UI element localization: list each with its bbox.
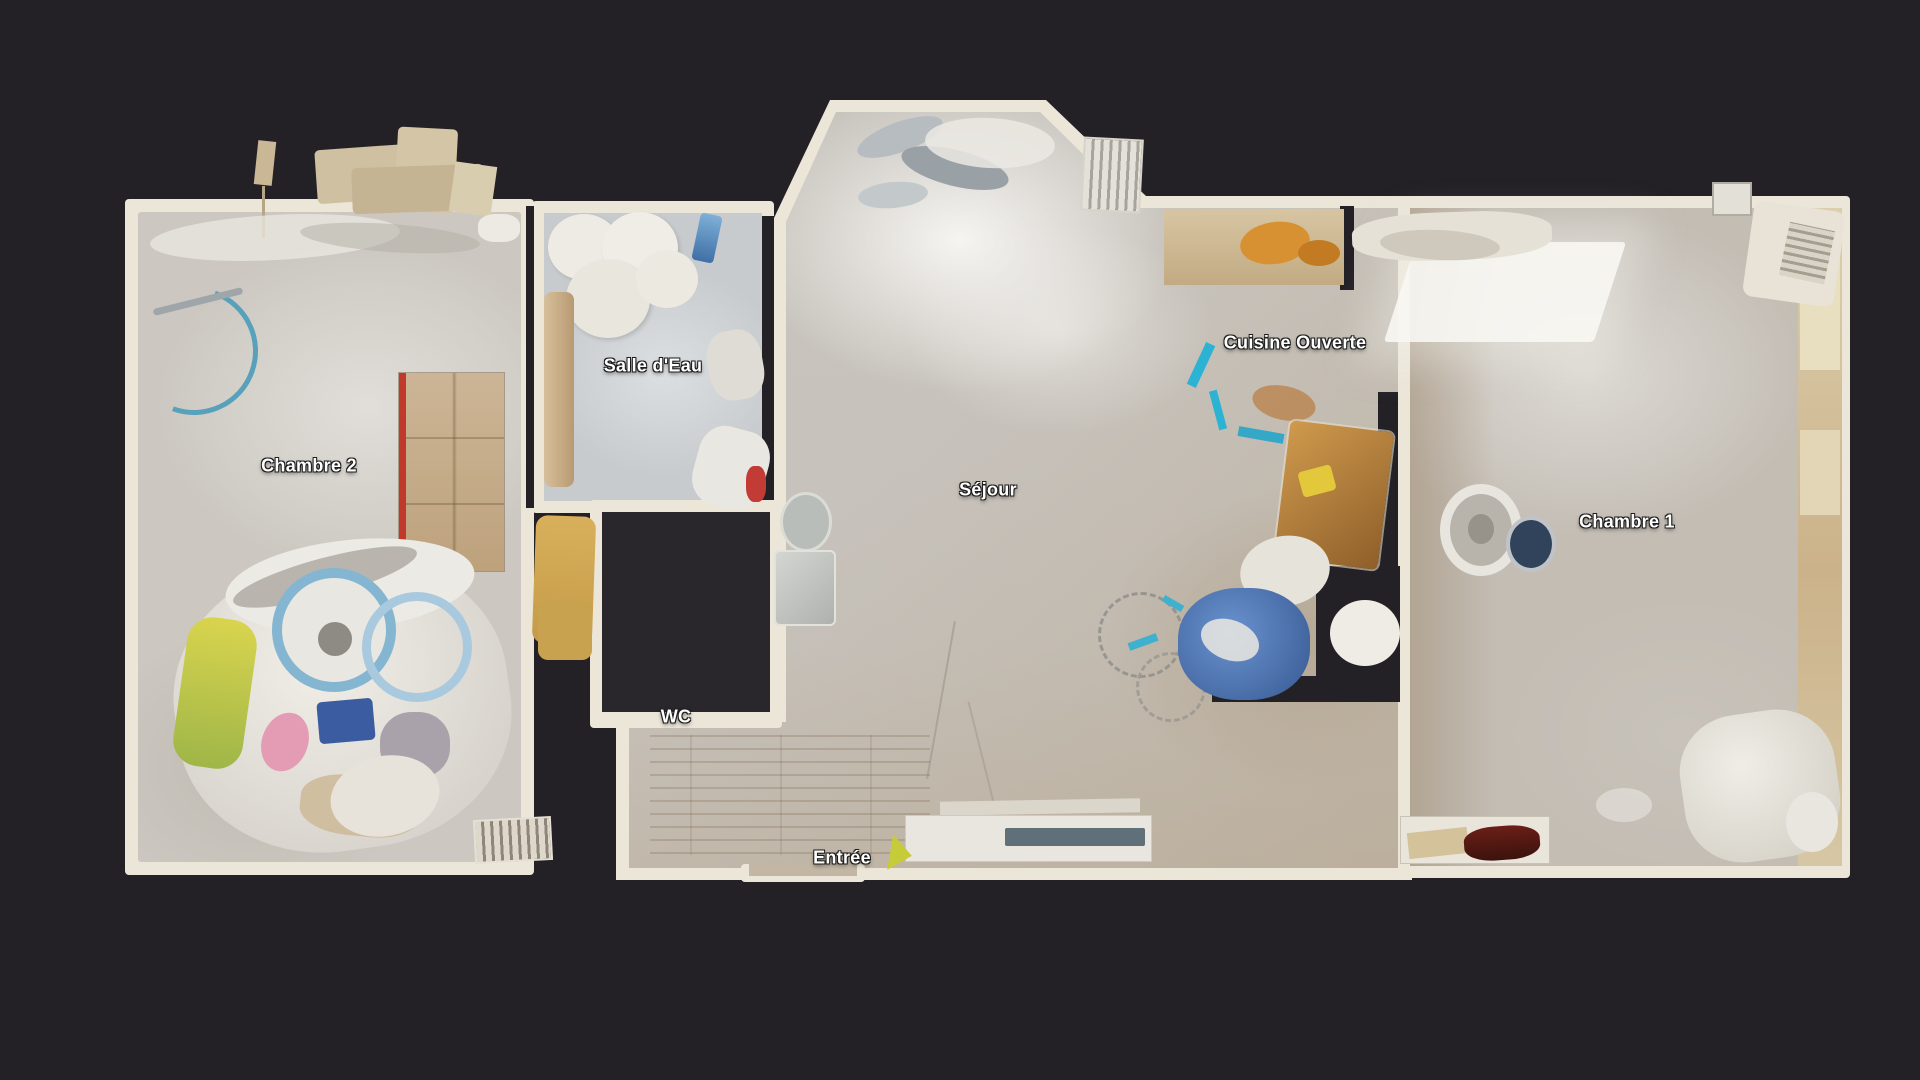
- white-bag: [1786, 792, 1838, 852]
- plaster-debris: [478, 214, 520, 242]
- dark-pot: [1506, 516, 1556, 572]
- plaster-debris: [1596, 788, 1652, 822]
- bucket-center: [318, 622, 352, 656]
- exterior-debris: [254, 140, 277, 186]
- radiator-grill: [473, 816, 553, 864]
- yellow-sacks: [538, 602, 592, 660]
- room-wc[interactable]: [602, 512, 770, 712]
- pipe-column: [544, 292, 574, 487]
- exterior-debris: [449, 161, 498, 216]
- radiator: [1080, 136, 1144, 213]
- orange-debris: [1298, 240, 1340, 266]
- paint-bucket: [780, 492, 832, 552]
- rubble-sack: [636, 250, 698, 308]
- red-debris: [746, 466, 766, 502]
- mortar-tray: [774, 550, 836, 626]
- dark-strip: [1005, 828, 1145, 846]
- entrance-doorstep-floor: [749, 864, 857, 876]
- wall-box: [1712, 182, 1752, 216]
- bag-logo-patch: [316, 698, 375, 745]
- blue-hose-ring: [362, 592, 472, 702]
- floorplan-canvas[interactable]: Chambre 2 Salle d'Eau Séjour Cuisine Ouv…: [0, 0, 1920, 1080]
- parquet-marks: [650, 735, 930, 855]
- paper-debris: [1330, 600, 1400, 666]
- basin-center: [1468, 514, 1494, 544]
- window-glow-2: [1800, 430, 1840, 515]
- wall-seam-left-of-salle-deau: [526, 206, 534, 508]
